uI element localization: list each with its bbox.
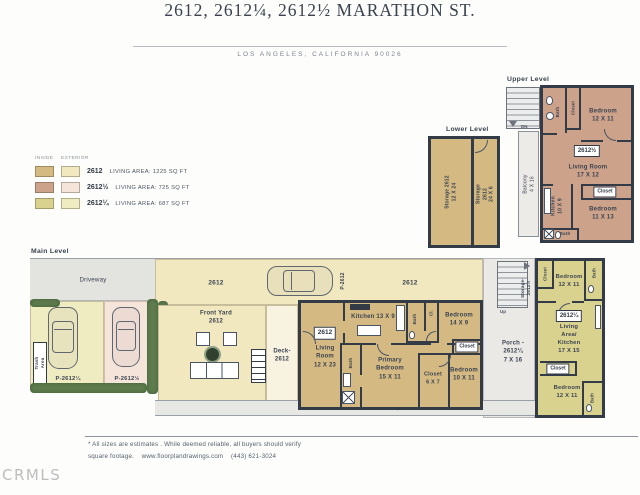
car-icon <box>267 266 333 296</box>
legend-exterior-header: EXTERIOR <box>61 156 89 161</box>
interior-wall <box>577 228 579 240</box>
deck-label: Deck- 2612 <box>273 348 290 365</box>
lower-level-plan: Storage 2612 12 X 24 Storage 2612 24 X 6 <box>428 136 500 248</box>
interior-wall <box>418 353 420 407</box>
chair-icon <box>196 332 210 346</box>
trash-area-label: Trash Area <box>34 356 46 369</box>
interior-wall <box>552 261 554 287</box>
interior-wall <box>567 128 581 130</box>
page-subtitle: LOS ANGELES, CALIFORNIA 90026 <box>0 51 640 58</box>
stairs-up-arrow-icon <box>524 262 530 270</box>
legend-swatch-exterior <box>61 198 80 209</box>
bath-label: Bath <box>555 107 561 118</box>
deck-stairs-icon <box>251 349 266 383</box>
storage-right-label: Storage 2612 24 X 6 <box>475 184 495 204</box>
interior-wall <box>543 133 557 135</box>
bath-label: Bath <box>412 314 418 325</box>
lower-level-title: Lower Level <box>446 126 489 133</box>
front-yard-label: Front Yard 2612 <box>200 310 232 327</box>
chair-icon <box>223 332 237 346</box>
interior-wall <box>581 140 603 142</box>
floor-plan-page: 2612, 2612¼, 2612½ MARATHON ST. LOS ANGE… <box>0 0 640 495</box>
interior-wall <box>452 339 454 355</box>
bedroom-label: Bedroom 14 X 9 <box>445 312 473 329</box>
interior-wall <box>391 343 431 345</box>
kitchen-island-icon <box>357 325 381 336</box>
car-icon <box>48 307 78 369</box>
toilet-icon <box>409 331 415 339</box>
car-icon <box>112 307 140 367</box>
legend-row: 2612¼ LIVING AREA: 687 SQ FT <box>35 198 190 209</box>
closet-small-label: Cl. <box>428 310 433 316</box>
storage-left-label: Storage 2612 12 X 24 <box>445 175 458 209</box>
interior-wall <box>571 184 573 228</box>
stove-icon <box>350 304 370 310</box>
interior-wall <box>572 301 584 303</box>
parking-tag: P-2612 <box>340 272 347 289</box>
upper-level-plan: Bath Closet Bedroom 12 X 11 2612½ Living… <box>540 85 634 243</box>
interior-wall <box>575 361 577 376</box>
yard-unit-tag: 2612 <box>208 278 223 287</box>
unit-tag: 2612¼ <box>556 310 582 322</box>
sink-icon <box>343 373 351 387</box>
interior-wall <box>582 381 584 415</box>
hedge <box>30 383 147 393</box>
bedroom-label: Bedroom 11 X 13 <box>589 206 617 223</box>
porch-label: Porch - 2612¼ 7 X 16 <box>502 339 524 364</box>
closet-label: Closet <box>570 101 575 115</box>
title-divider <box>133 46 507 47</box>
disclaimer-line-2: square footage. www.floorplandrawings.co… <box>88 453 276 460</box>
interior-wall <box>340 343 376 345</box>
hedge <box>147 299 158 394</box>
page-title: 2612, 2612¼, 2612½ MARATHON ST. <box>0 0 640 21</box>
legend-row: 2612 LIVING AREA: 1225 SQ FT <box>35 166 187 177</box>
interior-wall <box>584 261 586 299</box>
bath-label: Bath <box>348 358 354 369</box>
unit-tag: 2612½ <box>574 145 600 157</box>
interior-wall <box>452 353 480 355</box>
interior-wall <box>471 139 474 245</box>
closet-label: Closet 6 X 7 <box>424 371 442 386</box>
washer-icon <box>544 229 554 239</box>
legend-area-label: LIVING AREA: 1225 SQ FT <box>110 169 188 175</box>
legend-swatch-inside <box>35 182 54 193</box>
driveway-label: Driveway <box>79 277 106 286</box>
toilet-icon <box>586 404 592 412</box>
interior-wall <box>406 303 408 343</box>
stairs-dn-label: DN <box>521 124 528 129</box>
parking-label: P-2612¼ <box>56 375 81 383</box>
stairs-up-label: Up <box>500 309 506 314</box>
closet-tag: Closet <box>546 364 569 375</box>
interior-wall <box>538 301 556 303</box>
interior-wall <box>437 303 439 343</box>
kitchen-label: Kitchen 13 X 9 <box>351 313 395 321</box>
kitchen-counter-icon <box>544 188 551 214</box>
trash-area: Trash Area <box>33 342 47 385</box>
kitchen-counter-icon <box>595 305 601 329</box>
bedroom-label: Bedroom 10 X 11 <box>450 367 478 384</box>
storage-half-label: Storage- 2612½ <box>520 278 532 298</box>
crmls-logo: CRMLS <box>2 466 61 484</box>
sofa-icon <box>190 362 239 379</box>
legend-swatch-inside <box>35 166 54 177</box>
interior-wall <box>579 88 581 128</box>
primary-bedroom-label: Primary Bedroom 15 X 11 <box>376 356 404 381</box>
interior-wall <box>582 381 602 383</box>
interior-wall <box>538 287 554 289</box>
balcony-label: Balcony 4 X 16 <box>523 174 536 193</box>
toilet-icon <box>555 231 561 239</box>
door-arc <box>475 140 488 153</box>
toilet-icon <box>588 285 594 293</box>
washer-icon <box>342 391 355 404</box>
disclaimer-line-1: * All sizes are estimates . While deemed… <box>88 441 301 448</box>
interior-wall <box>343 333 345 343</box>
balcony: Balcony 4 X 16 <box>518 131 539 237</box>
yard-unit-tag: 2612 <box>402 278 417 287</box>
hedge <box>30 299 60 307</box>
driveway: Driveway <box>30 259 155 301</box>
table-icon <box>204 346 221 363</box>
legend-unit-label: 2612¼ <box>87 200 108 207</box>
interior-wall <box>565 88 567 133</box>
upper-level-title: Upper Level <box>507 76 549 83</box>
closet-tag: Closet <box>593 187 616 198</box>
main-level-title: Main Level <box>31 248 69 255</box>
unit-quarter-plan: Closet Bedroom 12 X 11 Bath 2612¼ Living… <box>535 258 605 418</box>
bath-label: Bath <box>589 393 594 403</box>
bedroom-label: Bedroom 12 X 11 <box>556 273 583 289</box>
door-arc <box>426 331 436 341</box>
living-room-label: Living Room 12 X 23 <box>314 344 336 369</box>
legend-unit-label: 2612½ <box>87 184 108 191</box>
toilet-icon <box>546 96 553 105</box>
closet-tag: Closet <box>455 342 478 353</box>
kitchen-counter-icon <box>396 305 405 331</box>
bedroom-label: Bedroom 12 X 11 <box>589 108 617 125</box>
closet-label: Closet <box>542 267 547 281</box>
door-arc <box>377 344 389 356</box>
legend-swatch-inside <box>35 198 54 209</box>
bath-label: Bath <box>591 268 596 278</box>
house-2612-plan: Closet 2612 Living Room 12 X 23 Kitchen … <box>298 300 483 410</box>
interior-wall <box>406 341 439 343</box>
legend-row: 2612½ LIVING AREA: 725 SQ FT <box>35 182 190 193</box>
interior-wall <box>343 303 345 321</box>
stairs-down-arrow-icon <box>509 121 517 127</box>
legend-swatch-exterior <box>61 166 80 177</box>
legend-inside-header: INSIDE <box>35 156 53 161</box>
legend-unit-label: 2612 <box>87 168 103 175</box>
interior-wall <box>543 184 553 186</box>
sink-icon <box>546 112 554 120</box>
legend-area-label: LIVING AREA: 687 SQ FT <box>115 201 189 207</box>
interior-wall <box>617 140 631 142</box>
bath-label: Bath <box>560 231 571 237</box>
bedroom-label: Bedroom 12 X 11 <box>554 384 581 400</box>
legend-area-label: LIVING AREA: 725 SQ FT <box>115 185 189 191</box>
legend-swatch-exterior <box>61 182 80 193</box>
kitchen-label: Kitchen 10 X 9 <box>551 196 564 216</box>
interior-wall <box>581 184 583 200</box>
interior-wall <box>584 299 602 301</box>
interior-wall <box>581 198 631 200</box>
interior-wall <box>360 387 362 407</box>
interior-wall <box>360 345 362 375</box>
parking-label: P-2612½ <box>115 375 140 383</box>
living-area-label: Living Area/ Kitchen 17 X 15 <box>553 323 586 355</box>
interior-wall <box>424 303 426 331</box>
unit-tag: 2612 <box>314 327 336 340</box>
living-room-label: Living Room 17 X 12 <box>569 164 608 181</box>
door-arc <box>604 129 616 141</box>
footer-divider <box>85 436 638 437</box>
